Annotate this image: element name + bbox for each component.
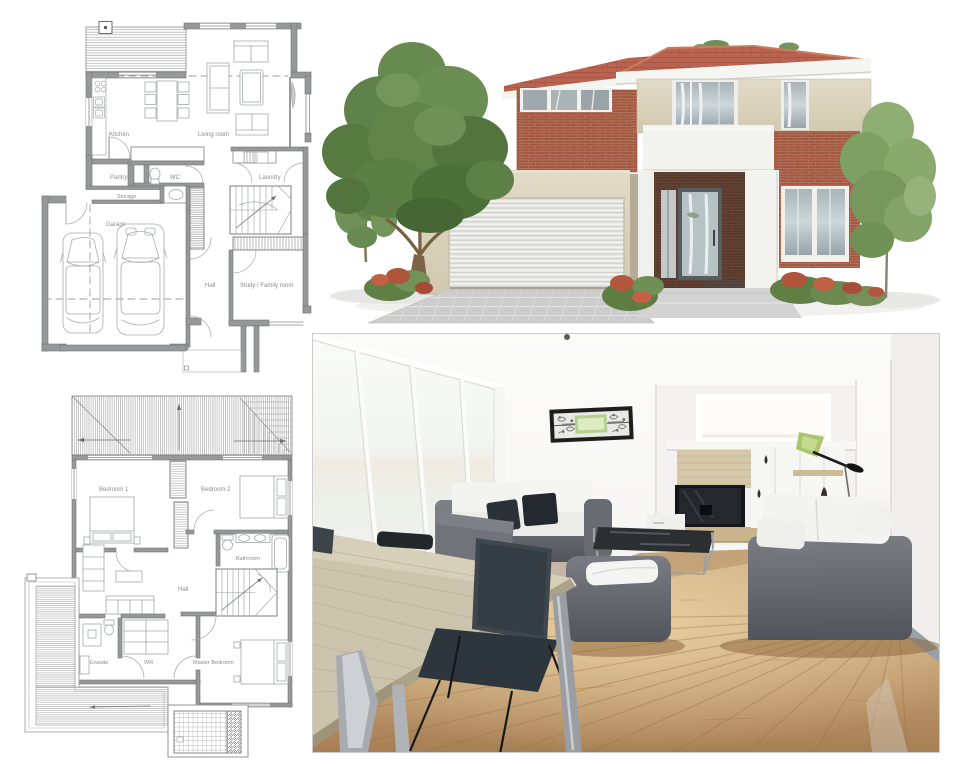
svg-text:Pantry: Pantry — [110, 175, 127, 181]
svg-text:Laundry: Laundry — [259, 175, 281, 181]
svg-text:Master Bedroom: Master Bedroom — [193, 660, 234, 666]
svg-text:Ensuite: Ensuite — [90, 660, 108, 666]
svg-text:Hall: Hall — [205, 283, 215, 289]
svg-text:Bedroom 1: Bedroom 1 — [99, 487, 129, 493]
svg-text:WC: WC — [170, 175, 181, 181]
svg-text:Storage: Storage — [117, 194, 136, 200]
svg-text:Bedroom 2: Bedroom 2 — [201, 487, 231, 493]
svg-text:Bathroom: Bathroom — [236, 556, 260, 562]
svg-text:WR: WR — [144, 660, 153, 666]
svg-text:Living room: Living room — [198, 132, 229, 138]
svg-text:Study / Family room: Study / Family room — [240, 283, 293, 289]
svg-text:Hall: Hall — [178, 587, 188, 593]
